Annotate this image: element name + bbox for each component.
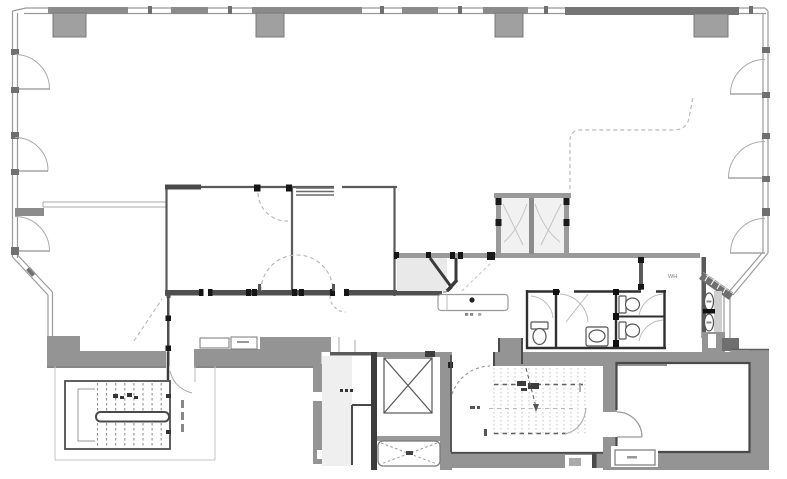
svg-text:WH: WH xyxy=(668,274,677,280)
